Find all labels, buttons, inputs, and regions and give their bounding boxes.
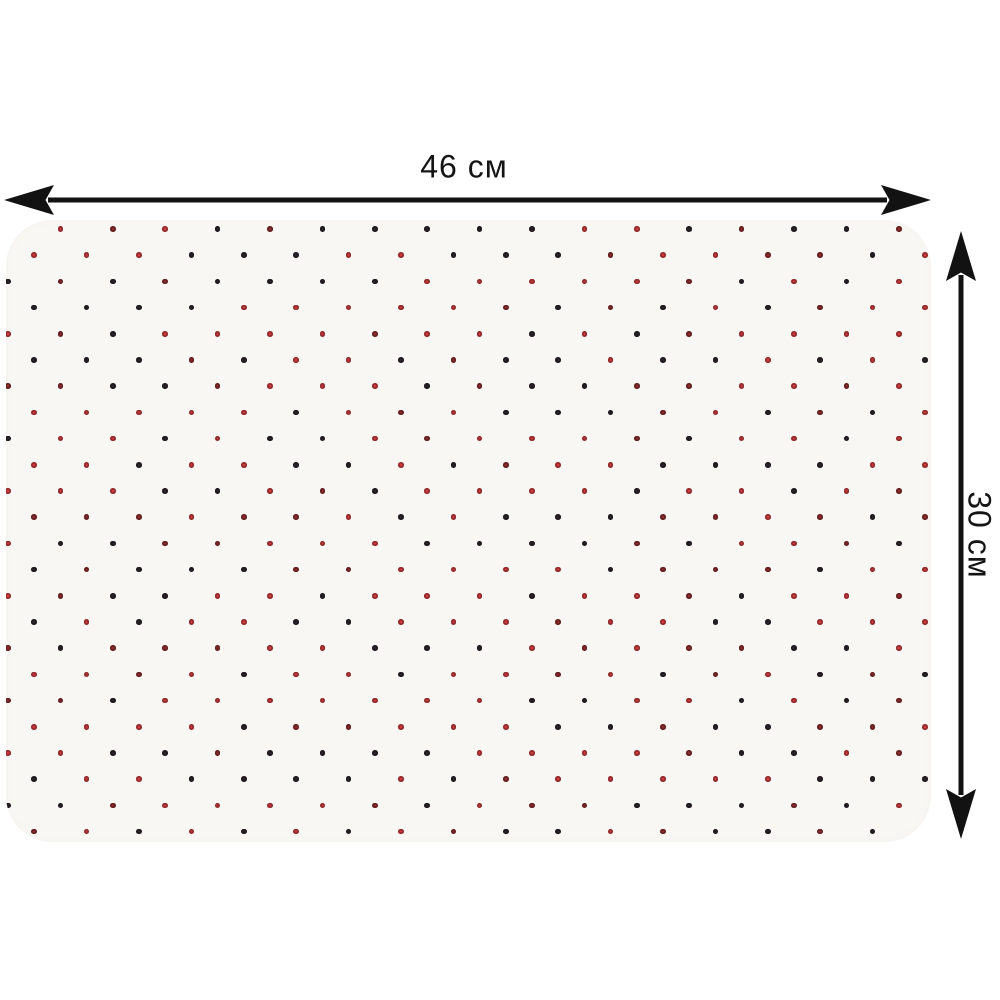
- polka-dot: [582, 279, 588, 285]
- polka-dot: [6, 698, 11, 704]
- polka-dot: [215, 331, 221, 337]
- polka-dot: [31, 462, 37, 468]
- polka-dot: [58, 279, 64, 285]
- polka-dot: [424, 750, 430, 756]
- polka-dot: [162, 436, 168, 442]
- polka-dot: [739, 593, 745, 599]
- polka-dot: [922, 672, 928, 678]
- polka-dot: [555, 410, 561, 416]
- polka-dot: [582, 803, 588, 809]
- polka-dot: [634, 803, 640, 809]
- polka-dot: [162, 226, 168, 232]
- polka-dot: [267, 436, 273, 442]
- polka-dot: [765, 776, 771, 782]
- polka-dot: [346, 619, 352, 625]
- polka-dot: [503, 619, 509, 625]
- polka-dot: [791, 593, 797, 599]
- polka-dot: [162, 541, 168, 547]
- polka-dot: [84, 514, 90, 520]
- polka-dot: [896, 593, 902, 599]
- polka-dot: [817, 305, 823, 311]
- polka-dot: [503, 514, 509, 520]
- polka-dot: [739, 488, 745, 494]
- polka-dot: [844, 750, 850, 756]
- polka-dot: [634, 279, 640, 285]
- polka-dot: [267, 803, 273, 809]
- polka-dot: [713, 462, 719, 468]
- polka-dot: [189, 829, 195, 835]
- polka-dot: [424, 331, 430, 337]
- polka-dot: [58, 383, 64, 389]
- polka-dot: [6, 803, 11, 809]
- polka-dot: [58, 698, 64, 704]
- polka-dot: [162, 645, 168, 651]
- polka-dot: [6, 226, 11, 232]
- polka-dot: [398, 252, 404, 258]
- polka-dot: [870, 672, 876, 678]
- polka-dot: [241, 462, 247, 468]
- polka-dot: [451, 514, 457, 520]
- polka-dot: [791, 383, 797, 389]
- polka-dot: [215, 541, 221, 547]
- polka-dot: [6, 750, 11, 756]
- arrowhead-left-icon: [4, 185, 54, 215]
- polka-dot: [844, 226, 850, 232]
- polka-dot: [84, 462, 90, 468]
- polka-dot: [529, 750, 535, 756]
- polka-dot: [765, 252, 771, 258]
- polka-dot: [896, 488, 902, 494]
- polka-dot: [686, 803, 692, 809]
- polka-dot: [477, 750, 483, 756]
- polka-dot: [582, 331, 588, 337]
- arrowhead-up-icon: [946, 231, 976, 281]
- polka-dot: [398, 410, 404, 416]
- polka-dot: [870, 829, 876, 835]
- polka-dot: [739, 331, 745, 337]
- polka-dot: [870, 252, 876, 258]
- polka-dot: [817, 567, 823, 573]
- polka-dot: [844, 488, 850, 494]
- polka-dot: [136, 252, 142, 258]
- polka-dot: [896, 541, 902, 547]
- polka-dot: [84, 724, 90, 730]
- polka-dot: [372, 541, 378, 547]
- polka-dot: [529, 488, 535, 494]
- polka-dot: [398, 357, 404, 363]
- polka-dot: [6, 383, 11, 389]
- polka-dot: [791, 645, 797, 651]
- polka-dot: [870, 567, 876, 573]
- polka-dot: [241, 776, 247, 782]
- polka-dot: [529, 279, 535, 285]
- height-dimension-label: 30 см: [961, 491, 998, 578]
- polka-dot: [634, 331, 640, 337]
- polka-dot: [6, 541, 11, 547]
- polka-dot: [660, 619, 666, 625]
- dimension-diagram: 46 см 30 см: [0, 0, 1000, 1000]
- polka-dot: [293, 410, 299, 416]
- polka-dot: [31, 357, 37, 363]
- polka-dot: [870, 724, 876, 730]
- polka-dot: [451, 776, 457, 782]
- polka-dot: [162, 279, 168, 285]
- polka-dot: [686, 488, 692, 494]
- polka-dot: [110, 488, 116, 494]
- polka-dot: [451, 672, 457, 678]
- polka-dot: [608, 776, 614, 782]
- polka-dot: [713, 619, 719, 625]
- polka-dot: [791, 226, 797, 232]
- polka-dot: [215, 279, 221, 285]
- polka-dot: [215, 645, 221, 651]
- polka-dot: [6, 331, 11, 337]
- polka-dot: [372, 593, 378, 599]
- polka-dot: [320, 645, 326, 651]
- polka-dot: [110, 698, 116, 704]
- polka-dot: [346, 462, 352, 468]
- polka-dot: [765, 410, 771, 416]
- polka-dot: [293, 252, 299, 258]
- polka-dot: [844, 593, 850, 599]
- polka-dot: [817, 672, 823, 678]
- polka-dot: [241, 514, 247, 520]
- polka-dot: [713, 252, 719, 258]
- polka-dot: [817, 724, 823, 730]
- polka-dot: [320, 383, 326, 389]
- polka-dot: [189, 776, 195, 782]
- polka-dot: [896, 279, 902, 285]
- polka-dot: [346, 829, 352, 835]
- polka-dot: [424, 383, 430, 389]
- polka-dot: [477, 279, 483, 285]
- polka-dot: [713, 357, 719, 363]
- polka-dot: [320, 593, 326, 599]
- polka-dot: [31, 724, 37, 730]
- polka-dot: [896, 331, 902, 337]
- polka-dot: [346, 410, 352, 416]
- polka-dot: [398, 462, 404, 468]
- polka-dot: [346, 567, 352, 573]
- polka-dot: [267, 541, 273, 547]
- polka-dot: [31, 776, 37, 782]
- width-dimension-label: 46 см: [420, 149, 507, 186]
- polka-dot: [31, 672, 37, 678]
- polka-dot: [320, 698, 326, 704]
- polka-dot: [451, 567, 457, 573]
- polka-dot: [713, 514, 719, 520]
- polka-dot: [424, 436, 430, 442]
- polka-dot: [346, 672, 352, 678]
- polka-dot: [84, 672, 90, 678]
- polka-dot: [215, 803, 221, 809]
- polka-dot: [136, 514, 142, 520]
- polka-dot: [660, 776, 666, 782]
- polka-dot: [398, 619, 404, 625]
- polka-dot: [870, 410, 876, 416]
- polka-dot: [503, 305, 509, 311]
- polka-dot: [215, 488, 221, 494]
- polka-dot: [477, 541, 483, 547]
- polka-dot: [922, 305, 928, 311]
- polka-dot: [896, 698, 902, 704]
- polka-dot: [503, 724, 509, 730]
- polka-dot: [477, 383, 483, 389]
- polka-dot: [529, 645, 535, 651]
- polka-dot: [346, 357, 352, 363]
- polka-dot: [686, 541, 692, 547]
- polka-dot: [582, 750, 588, 756]
- polka-dot: [320, 226, 326, 232]
- polka-dot: [477, 331, 483, 337]
- polka-dot: [817, 462, 823, 468]
- polka-dot: [922, 724, 928, 730]
- polka-dot: [162, 331, 168, 337]
- polka-dot: [608, 514, 614, 520]
- polka-dot: [58, 436, 64, 442]
- polka-dot: [608, 410, 614, 416]
- polka-dot: [293, 305, 299, 311]
- polka-dot: [896, 226, 902, 232]
- polka-dot: [58, 541, 64, 547]
- polka-dot: [267, 331, 273, 337]
- polka-dot: [791, 436, 797, 442]
- polka-dot: [896, 383, 902, 389]
- polka-dot: [110, 279, 116, 285]
- polka-dot: [424, 541, 430, 547]
- polka-dot: [844, 279, 850, 285]
- polka-dot: [582, 226, 588, 232]
- polka-dot: [293, 724, 299, 730]
- polka-dot: [922, 829, 928, 835]
- polka-dot: [189, 305, 195, 311]
- polka-dot: [713, 776, 719, 782]
- polka-dot: [634, 698, 640, 704]
- polka-dot: [320, 436, 326, 442]
- polka-dot: [870, 514, 876, 520]
- polka-dot: [686, 383, 692, 389]
- polka-dot: [503, 357, 509, 363]
- polka-dot: [634, 645, 640, 651]
- polka-dot: [241, 252, 247, 258]
- polka-dot: [844, 331, 850, 337]
- polka-dot: [84, 829, 90, 835]
- polka-dot: [293, 462, 299, 468]
- polka-dot: [398, 567, 404, 573]
- polka-dot: [162, 593, 168, 599]
- polka-dot: [555, 619, 561, 625]
- polka-dot: [922, 619, 928, 625]
- polka-dot: [660, 829, 666, 835]
- polka-dot: [870, 305, 876, 311]
- polka-dot: [372, 436, 378, 442]
- polka-dot: [267, 750, 273, 756]
- polka-dot: [765, 462, 771, 468]
- polka-dot: [503, 672, 509, 678]
- polka-dot: [84, 305, 90, 311]
- polka-dot: [215, 698, 221, 704]
- polka-dot: [817, 619, 823, 625]
- polka-dot: [555, 357, 561, 363]
- polka-dot: [110, 383, 116, 389]
- polka-dot: [582, 698, 588, 704]
- polka-dot: [293, 619, 299, 625]
- polka-dot: [765, 514, 771, 520]
- polka-dot: [713, 672, 719, 678]
- polka-dot: [398, 724, 404, 730]
- polka-dot: [870, 357, 876, 363]
- polka-dot: [6, 488, 11, 494]
- polka-dot: [660, 462, 666, 468]
- polka-dot: [582, 541, 588, 547]
- polka-dot: [529, 226, 535, 232]
- polka-dot: [136, 776, 142, 782]
- polka-dot: [241, 410, 247, 416]
- polka-dot: [31, 514, 37, 520]
- polka-dot: [713, 410, 719, 416]
- polka-dot: [765, 305, 771, 311]
- polka-dot: [660, 252, 666, 258]
- polka-dot: [686, 331, 692, 337]
- polka-dot: [241, 305, 247, 311]
- polka-dot: [503, 252, 509, 258]
- polka-dot: [372, 803, 378, 809]
- polka-dot: [58, 750, 64, 756]
- polka-dot: [503, 410, 509, 416]
- polka-dot: [844, 803, 850, 809]
- polka-dot: [451, 410, 457, 416]
- polka-dot: [110, 226, 116, 232]
- polka-dot: [608, 305, 614, 311]
- polka-dot: [58, 803, 64, 809]
- polka-dot: [608, 567, 614, 573]
- polka-dot: [739, 436, 745, 442]
- polka-dot: [346, 305, 352, 311]
- polka-dot: [817, 357, 823, 363]
- polka-dot: [162, 698, 168, 704]
- polka-dot: [608, 672, 614, 678]
- polka-dot: [660, 305, 666, 311]
- polka-dot: [110, 541, 116, 547]
- polka-dot: [660, 672, 666, 678]
- polka-dot: [844, 541, 850, 547]
- polka-dot: [765, 619, 771, 625]
- polka-dot: [765, 567, 771, 573]
- polka-dot: [791, 541, 797, 547]
- polka-dot: [241, 619, 247, 625]
- polka-dot: [31, 829, 37, 835]
- polka-dot: [713, 724, 719, 730]
- polka-dot: [739, 698, 745, 704]
- polka-dot: [582, 436, 588, 442]
- polka-dot: [739, 645, 745, 651]
- polka-dot: [739, 279, 745, 285]
- polka-dot: [896, 645, 902, 651]
- polka-dot: [372, 645, 378, 651]
- polka-dot: [320, 331, 326, 337]
- polka-dot: [293, 357, 299, 363]
- polka-dot: [739, 541, 745, 547]
- polka-dot: [451, 619, 457, 625]
- polka-dot: [503, 829, 509, 835]
- polka-dot: [372, 279, 378, 285]
- polka-dot: [451, 462, 457, 468]
- polka-dot: [896, 803, 902, 809]
- polka-dot: [372, 750, 378, 756]
- polka-dot: [31, 305, 37, 311]
- polka-dot: [634, 226, 640, 232]
- polka-dot: [896, 750, 902, 756]
- polka-dot: [477, 698, 483, 704]
- polka-dot: [817, 252, 823, 258]
- polka-dot: [6, 593, 11, 599]
- polka-dot: [6, 279, 11, 285]
- polka-dot: [136, 567, 142, 573]
- polka-dot: [713, 567, 719, 573]
- polka-dot: [136, 305, 142, 311]
- polka-dot: [136, 462, 142, 468]
- polka-dot: [293, 672, 299, 678]
- polka-dot: [791, 279, 797, 285]
- polka-dot: [320, 488, 326, 494]
- polka-dot: [529, 593, 535, 599]
- polka-dot: [529, 541, 535, 547]
- polka-dot: [398, 672, 404, 678]
- polka-dot: [660, 514, 666, 520]
- polka-dot: [398, 829, 404, 835]
- polka-dot: [267, 279, 273, 285]
- polka-dot: [136, 672, 142, 678]
- polka-dot: [136, 410, 142, 416]
- polka-dot: [189, 567, 195, 573]
- polka-dot: [84, 252, 90, 258]
- polka-dot: [529, 383, 535, 389]
- polka-dot: [582, 488, 588, 494]
- polka-dot: [870, 776, 876, 782]
- polka-dot: [686, 645, 692, 651]
- polka-dot: [31, 619, 37, 625]
- polka-dot: [817, 829, 823, 835]
- polka-dot: [424, 488, 430, 494]
- polka-dot: [660, 410, 666, 416]
- polka-dot: [634, 436, 640, 442]
- polka-dot: [739, 750, 745, 756]
- polka-dot: [844, 645, 850, 651]
- polka-dot: [634, 593, 640, 599]
- polka-dot: [713, 305, 719, 311]
- polka-dot: [372, 488, 378, 494]
- polka-dot: [241, 672, 247, 678]
- polka-dot: [634, 488, 640, 494]
- polka-dot: [844, 436, 850, 442]
- polka-dot: [110, 750, 116, 756]
- polka-dot: [922, 252, 928, 258]
- polka-dot: [162, 750, 168, 756]
- polka-dot: [529, 698, 535, 704]
- polka-dot: [215, 436, 221, 442]
- polka-dot: [686, 593, 692, 599]
- polka-dot: [817, 410, 823, 416]
- polka-dot: [346, 724, 352, 730]
- polka-dot: [424, 645, 430, 651]
- polka-dot: [922, 567, 928, 573]
- polka-dot: [6, 436, 11, 442]
- polka-dot: [136, 619, 142, 625]
- polka-dot: [58, 645, 64, 651]
- polka-dot: [84, 776, 90, 782]
- polka-dot: [922, 462, 928, 468]
- polka-dot: [791, 750, 797, 756]
